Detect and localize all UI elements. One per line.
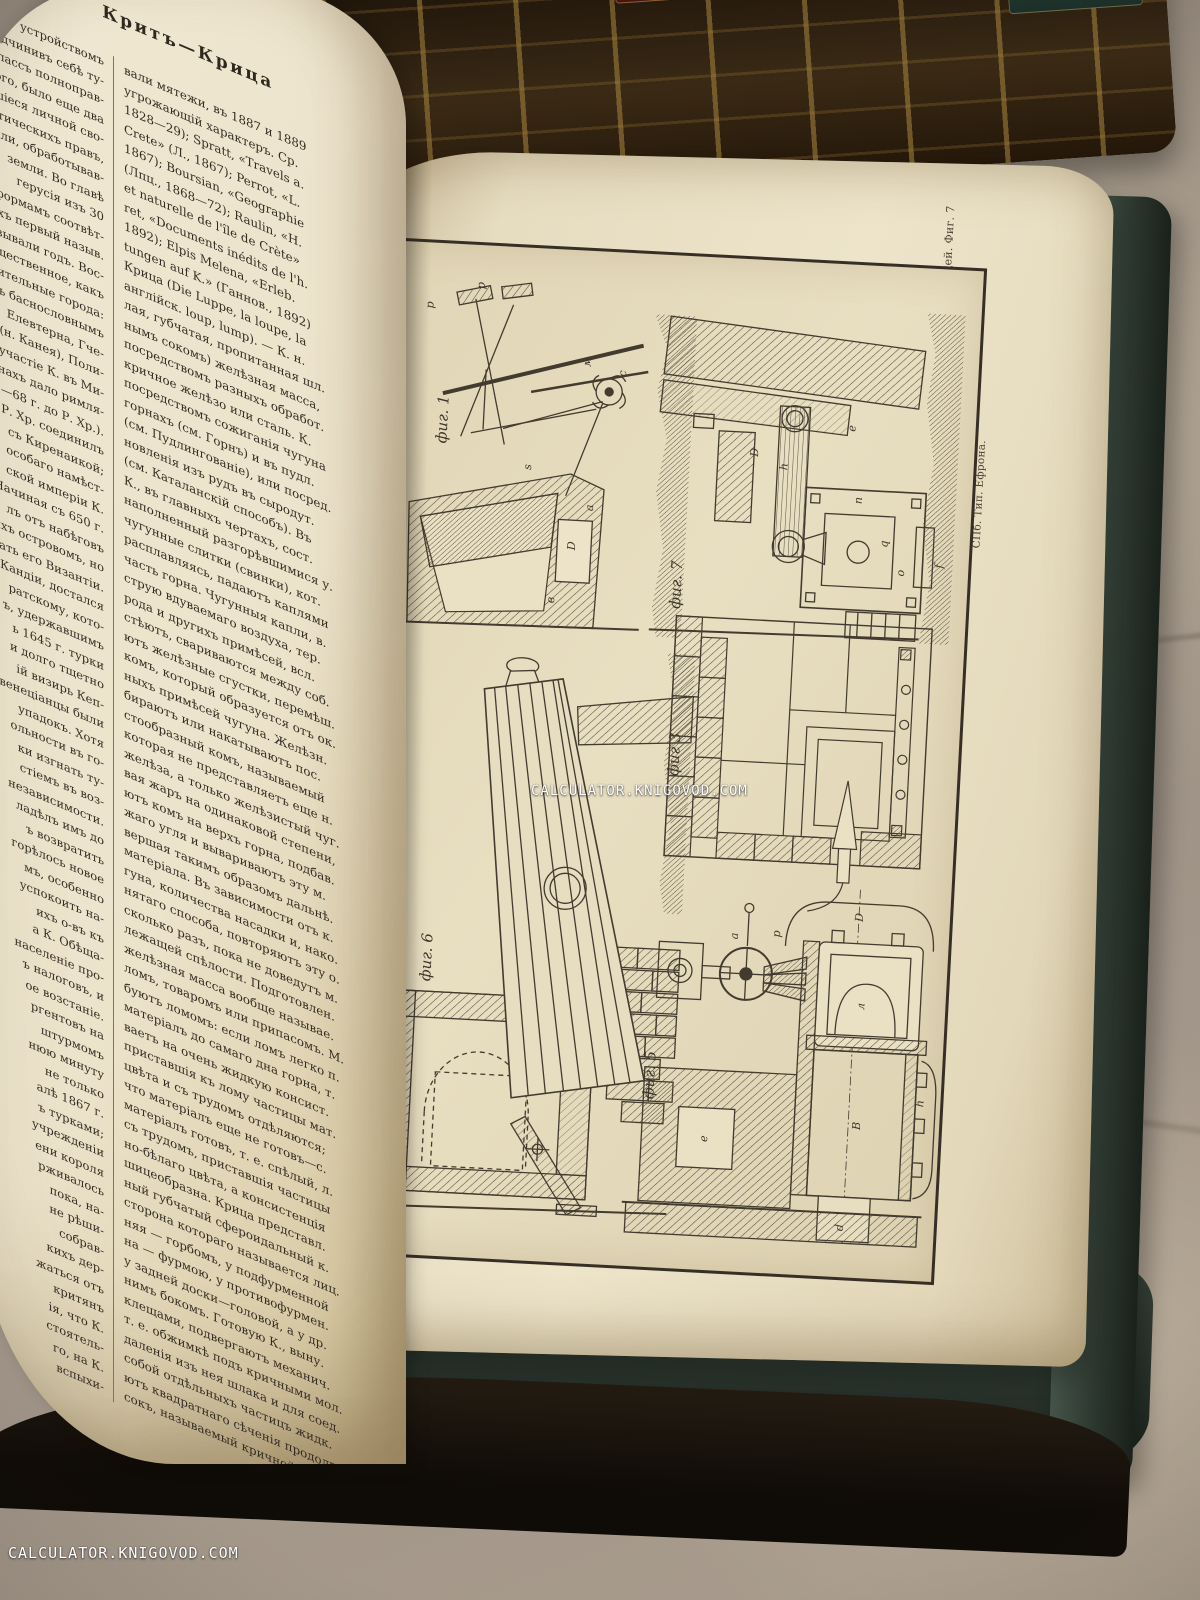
watermark-bottom: CALCULATOR.KNIGOVOD.COM	[8, 1544, 239, 1562]
figure-7-hearth: фиг. 7 D h e n q o f	[649, 300, 966, 645]
part-letter: в	[544, 596, 557, 603]
figure-label: фиг. 7	[666, 560, 687, 609]
left-page-text: Критъ—Крица устройствомъПодчинивъ себѣ т…	[0, 0, 384, 1464]
part-letter: s	[521, 463, 534, 470]
part-letter: a	[728, 932, 741, 939]
figure-label: фиг. 5	[639, 1050, 659, 1099]
text-column-right: вали мятежи, въ 1887 и 1889угрожающій ха…	[113, 56, 380, 1464]
part-letter: h	[913, 1100, 926, 1108]
part-letter: B	[850, 1121, 863, 1131]
part-letter: D	[748, 447, 762, 458]
photo-of-open-book: Фиг 1. Открытый горнъ. Фиг. 3. Закрытый …	[0, 0, 1200, 1600]
part-letter: o	[894, 569, 907, 577]
part-letter: h	[777, 463, 790, 471]
part-letter: л	[854, 1003, 867, 1011]
part-letter: p	[474, 282, 487, 290]
book-spine-label	[612, 0, 704, 4]
watermark-center: CALCULATOR.KNIGOVOD.COM	[531, 783, 748, 799]
part-letter: n	[852, 497, 865, 505]
part-letter: a	[583, 504, 596, 511]
engraving-plate: Кричный передѣлъ.	[313, 236, 987, 1285]
part-letter: p	[770, 930, 783, 938]
part-letter: p	[423, 301, 436, 309]
part-letter: м	[580, 357, 593, 367]
part-letter: d	[833, 1224, 846, 1232]
part-letter: q	[877, 540, 890, 548]
part-letter: D	[565, 541, 579, 552]
figure-5-closed-hearth: фиг. 5 a p D л B e h d	[620, 876, 939, 1253]
figure-label: фиг. 6	[416, 932, 437, 981]
part-letter: с	[616, 370, 629, 377]
part-letter: D	[853, 912, 867, 923]
text-column-left: устройствомъПодчинивъ себѣ ту-ній классъ…	[0, 0, 113, 1402]
book-spine-label	[1003, 0, 1143, 14]
left-page: Критъ—Крица устройствомъПодчинивъ себѣ т…	[0, 0, 406, 1464]
part-letter: e	[845, 424, 858, 432]
figure-label: фиг. 1	[432, 395, 452, 444]
part-letter: e	[697, 1135, 710, 1143]
